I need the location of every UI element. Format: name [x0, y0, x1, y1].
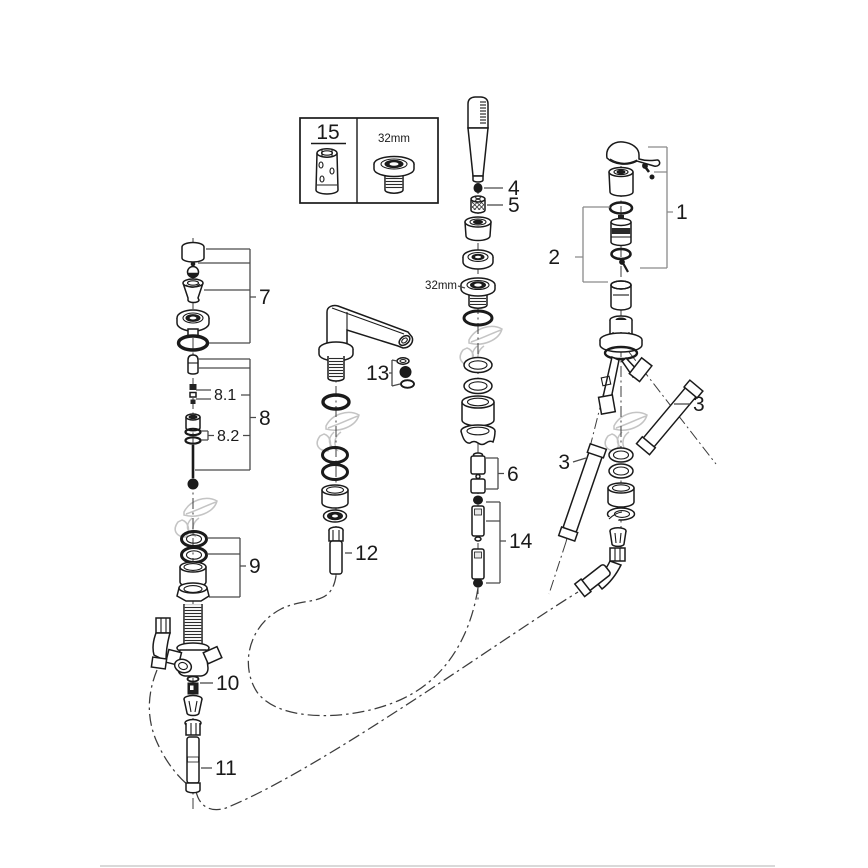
retainer-cup	[611, 281, 631, 310]
lever-handle	[607, 142, 660, 166]
part-7-cap	[182, 243, 204, 263]
callout-6: 6	[507, 463, 519, 486]
callout-2: 2	[548, 246, 560, 269]
pin	[191, 262, 195, 266]
callout-8-2: 8.2	[217, 428, 239, 445]
hand-shower	[468, 97, 488, 182]
cartridge	[611, 215, 631, 246]
part-12-hose-end	[329, 527, 343, 574]
callout-7: 7	[259, 286, 271, 309]
elbow-nut	[610, 528, 626, 547]
part-5-strainer	[471, 196, 485, 213]
part-6-hose-nipples	[471, 453, 485, 493]
ball	[188, 267, 199, 278]
size-label-32mm: 32mm	[425, 280, 457, 292]
dome-cap	[609, 168, 633, 197]
spacer-cylinder	[608, 483, 634, 507]
legend-size-label: 32mm	[378, 133, 410, 145]
spacer-cylinder	[462, 396, 494, 426]
callout-3-left: 3	[558, 451, 570, 474]
callout-1: 1	[676, 201, 688, 224]
callout-5: 5	[508, 194, 520, 217]
callout-10: 10	[216, 672, 239, 695]
callout-12: 12	[355, 542, 378, 565]
callout-11: 11	[215, 757, 237, 780]
exploded-parts-diagram: 15 32mm	[0, 0, 868, 868]
callout-9: 9	[249, 555, 261, 578]
o-ring	[323, 465, 348, 480]
hose-nut	[185, 720, 201, 736]
washer-8-2	[186, 429, 201, 435]
part-10-insert	[188, 683, 198, 694]
lock-nut	[461, 425, 495, 445]
callout-14: 14	[509, 530, 533, 553]
washer	[464, 358, 492, 373]
drain-flange	[177, 310, 209, 336]
compression-nut	[184, 696, 202, 716]
socket-cup	[465, 217, 491, 241]
elbow-hose	[575, 548, 625, 597]
legend-box: 15 32mm	[300, 118, 438, 203]
callout-8: 8	[259, 407, 271, 430]
drain-and-body-stack	[151, 243, 221, 793]
right-port-fitting	[629, 358, 652, 382]
check-valve-parts	[471, 184, 485, 214]
valve-body	[166, 604, 222, 676]
diagram-svg: 15 32mm	[0, 0, 868, 868]
spout-assembly	[319, 306, 414, 574]
centerlines	[193, 166, 716, 812]
ecojoy-leaf-watermark	[317, 412, 359, 451]
legend-part-number: 15	[316, 121, 339, 144]
part-11-supply-hose	[186, 737, 200, 793]
callout-8-1: 8.1	[214, 387, 236, 404]
part-8-lift-rod	[186, 355, 201, 489]
washer	[609, 464, 633, 478]
knurled-ring	[324, 510, 347, 522]
rosette-disc	[463, 250, 493, 269]
spout-flange-shank	[319, 342, 353, 381]
cartridge-sleeve-part	[316, 149, 338, 194]
part-14-check-valves	[472, 496, 484, 587]
washer	[464, 379, 492, 394]
part-13-aerator-set	[397, 358, 414, 388]
washer	[609, 448, 633, 462]
mounting-nut-32mm	[461, 278, 495, 308]
callout-13: 13	[366, 362, 389, 385]
part-4-seal	[474, 184, 482, 193]
spacer-cylinder	[322, 485, 348, 508]
hose-routing-lines	[149, 576, 578, 810]
callout-3-right: 3	[693, 393, 705, 416]
funnel-piece	[183, 279, 203, 303]
